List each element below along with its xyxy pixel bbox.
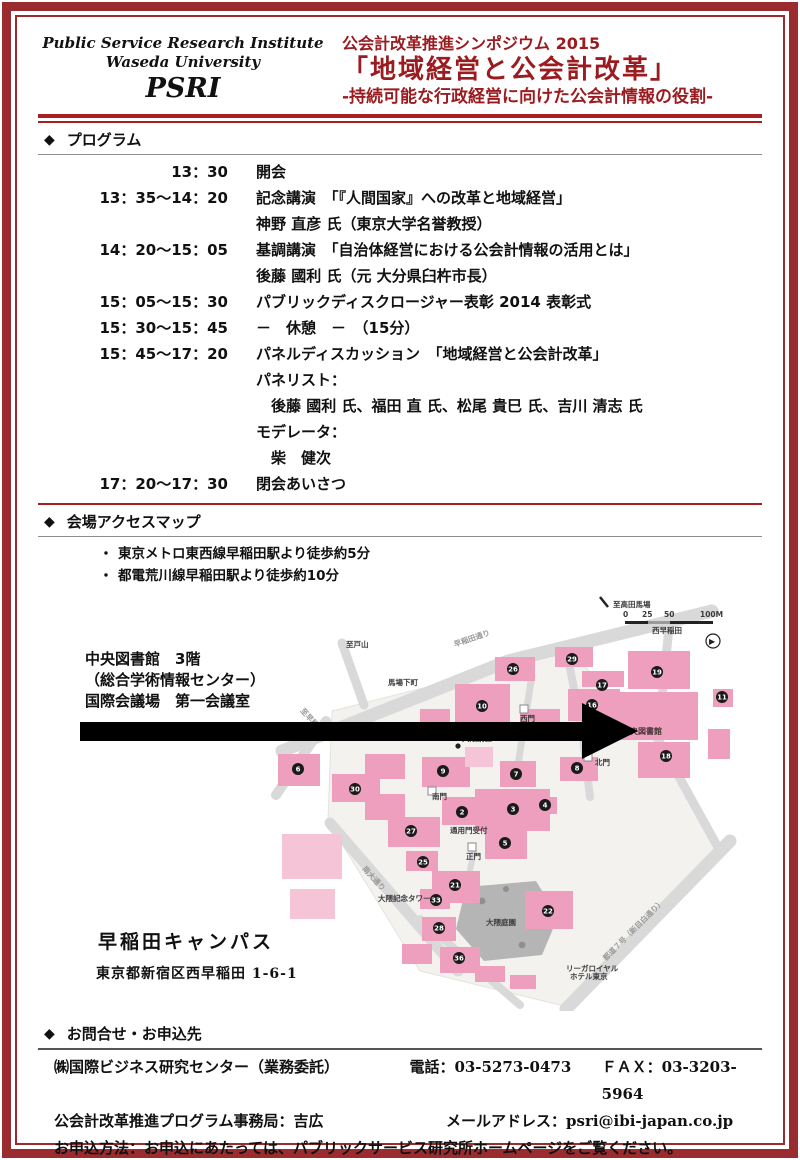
program-text: 開会 — [256, 159, 286, 185]
program-time: 15：30～15：45 — [38, 315, 228, 341]
building-number: 21 — [450, 882, 460, 890]
program-rows: 13：30 開会 13：35～14：20 記念講演 「『人間国家』への改革と地域… — [38, 159, 762, 497]
campus-map: 0 25 50 100M ▶ 早稲田通り 至戸山 至早稲田駅 至高田馬場 — [38, 589, 762, 1011]
contact-office: 公会計改革推進プログラム事務局：吉広 — [54, 1108, 446, 1135]
venue-label: 中央図書館 3階 （総合学術情報センター） 国際会議場 第一会議室 — [85, 649, 265, 712]
program-row: パネリスト： — [38, 367, 762, 393]
access-bullet: ・ 東京メトロ東西線早稲田駅より徒歩約5分 — [94, 543, 762, 565]
program-time — [38, 211, 228, 237]
building-number: 5 — [503, 840, 508, 848]
access-bullets: ・ 東京メトロ東西線早稲田駅より徒歩約5分 ・ 都電荒川線早稲田駅より徒歩約10… — [94, 543, 762, 587]
contact-line-office: 公会計改革推進プログラム事務局：吉広 メールアドレス： psri@ibi-jap… — [54, 1108, 762, 1135]
program-time: 14：20～15：05 — [38, 237, 228, 263]
building-number: 28 — [434, 925, 444, 933]
svg-text:0: 0 — [623, 610, 628, 619]
contact-section-heading: ◆ お問合せ・お申込先 — [38, 1017, 762, 1050]
contact-how: お申込方法：お申込にあたっては、パブリックサービス研究所ホームページをご覧くださ… — [54, 1135, 682, 1160]
building-number: 25 — [418, 859, 428, 867]
bullet-icon: ・ — [94, 543, 118, 565]
arrow-pointer — [80, 722, 582, 741]
program-text: 神野 直彦 氏（東京大学名誉教授） — [256, 211, 491, 237]
institute-block: Public Service Research Institute Waseda… — [38, 34, 328, 108]
building-number: 6 — [296, 766, 301, 774]
building-number: 3 — [511, 806, 516, 814]
svg-text:馬場下町: 馬場下町 — [388, 677, 418, 687]
building-number: 19 — [652, 669, 662, 677]
access-bullet-text: 東京メトロ東西線早稲田駅より徒歩約5分 — [118, 543, 370, 565]
program-time — [38, 367, 228, 393]
program-text: 後藤 國利 氏（元 大分県臼杵市長） — [256, 263, 497, 289]
svg-text:25: 25 — [642, 610, 652, 619]
access-heading-label: 会場アクセスマップ — [67, 511, 201, 532]
building-number: 4 — [543, 802, 548, 810]
tree-icon — [519, 942, 526, 949]
header-divider — [38, 114, 762, 123]
contact-company: ㈱国際ビジネス研究センター（業務委託） — [54, 1054, 409, 1108]
building-number: 26 — [508, 666, 518, 674]
building-number: 7 — [514, 771, 519, 779]
building-number: 33 — [431, 897, 441, 905]
contact-line-how: お申込方法：お申込にあたっては、パブリックサービス研究所ホームページをご覧くださ… — [54, 1135, 762, 1160]
svg-text:正門: 正門 — [466, 852, 481, 861]
institute-abbr: PSRI — [38, 73, 328, 105]
building-number: 9 — [441, 768, 446, 776]
access-bullet-text: 都電荒川線早稲田駅より徒歩約10分 — [118, 565, 339, 587]
building-number: 22 — [543, 908, 553, 916]
program-text: 基調講演 「自治体経営における公会計情報の活用とは」 — [256, 237, 639, 263]
university-name: Waseda University — [38, 53, 328, 72]
program-row: 神野 直彦 氏（東京大学名誉教授） — [38, 211, 762, 237]
tree-icon — [503, 886, 509, 892]
program-text: パブリックディスクロージャー表彰 2014 表彰式 — [256, 289, 591, 315]
program-row: 15：05～15：30 パブリックディスクロージャー表彰 2014 表彰式 — [38, 289, 762, 315]
building-number: 29 — [567, 656, 577, 664]
program-time: 13：30 — [38, 159, 228, 185]
program-text: 閉会あいさつ — [256, 471, 346, 497]
building-number: 17 — [597, 682, 607, 690]
event-title: 「地域経営と公会計改革」 — [342, 54, 713, 86]
svg-text:50: 50 — [664, 610, 674, 619]
program-text: 柴 健次 — [256, 445, 331, 471]
program-row: モデレータ： — [38, 419, 762, 445]
svg-text:南門: 南門 — [432, 791, 447, 801]
flyer-content: Public Service Research Institute Waseda… — [38, 20, 762, 1140]
building-number: 2 — [460, 809, 465, 817]
contact-section: ◆ お問合せ・お申込先 ㈱国際ビジネス研究センター（業務委託） 電話：03-52… — [38, 1017, 762, 1160]
program-time: 13：35～14：20 — [38, 185, 228, 211]
program-text: 後藤 國利 氏、福田 直 氏、松尾 貴巳 氏、吉川 清志 氏 — [256, 393, 643, 419]
svg-text:大隈庭園: 大隈庭園 — [486, 917, 516, 927]
program-time: 17：20～17：30 — [38, 471, 228, 497]
compass-icon: ▶ — [706, 634, 720, 648]
contact-line-company: ㈱国際ビジネス研究センター（業務委託） 電話：03-5273-0473 ＦＡＸ：… — [54, 1054, 762, 1108]
institute-name: Public Service Research Institute — [38, 34, 328, 53]
access-bullet: ・ 都電荒川線早稲田駅より徒歩約10分 — [94, 565, 762, 587]
pen-icon — [600, 597, 608, 607]
program-row: 後藤 國利 氏、福田 直 氏、松尾 貴巳 氏、吉川 清志 氏 — [38, 393, 762, 419]
program-row: 柴 健次 — [38, 445, 762, 471]
svg-text:▶: ▶ — [709, 637, 716, 646]
header: Public Service Research Institute Waseda… — [38, 34, 762, 108]
program-row: 15：30～15：45 － 休憩 － （15分） — [38, 315, 762, 341]
map-scale-bar: 0 25 50 100M — [623, 610, 723, 624]
building-number: 18 — [661, 753, 671, 761]
program-row: 13：30 開会 — [38, 159, 762, 185]
contact-fax: ＦＡＸ：03-3203-5964 — [602, 1054, 762, 1108]
program-text: パネルディスカッション 「地域経営と公会計改革」 — [256, 341, 607, 367]
access-section-heading: ◆ 会場アクセスマップ — [38, 505, 762, 537]
diamond-icon: ◆ — [44, 514, 55, 530]
program-time — [38, 445, 228, 471]
campus-address: 東京都新宿区西早稲田 1-6-1 — [96, 963, 298, 983]
program-row: 後藤 國利 氏（元 大分県臼杵市長） — [38, 263, 762, 289]
svg-text:西早稲田: 西早稲田 — [652, 625, 682, 635]
contact-heading-label: お問合せ・お申込先 — [67, 1023, 202, 1044]
program-row: 14：20～15：05 基調講演 「自治体経営における公会計情報の活用とは」 — [38, 237, 762, 263]
program-text: － 休憩 － （15分） — [256, 315, 419, 341]
building-number: 27 — [406, 828, 416, 836]
svg-text:100M: 100M — [700, 610, 723, 619]
flyer-page: Public Service Research Institute Waseda… — [0, 0, 800, 1160]
program-section-heading: ◆ プログラム — [38, 123, 762, 155]
bullet-icon: ・ — [94, 565, 118, 587]
program-text: モデレータ： — [256, 419, 346, 445]
program-heading-label: プログラム — [67, 129, 142, 150]
program-text: パネリスト： — [256, 367, 346, 393]
contact-email-label: メールアドレス： — [446, 1108, 566, 1135]
building-number: 30 — [350, 786, 360, 794]
svg-text:通用門受付: 通用門受付 — [450, 825, 488, 835]
svg-text:早稲田通り: 早稲田通り — [452, 627, 491, 649]
svg-text:ホテル東京: ホテル東京 — [570, 971, 608, 981]
arrow-pointer-head — [582, 703, 638, 759]
program-row: 15：45～17：20 パネルディスカッション 「地域経営と公会計改革」 — [38, 341, 762, 367]
diamond-icon: ◆ — [44, 1026, 55, 1042]
contact-email: psri@ibi-japan.co.jp — [566, 1108, 733, 1135]
diamond-icon: ◆ — [44, 132, 55, 148]
event-subtitle: -持続可能な行政経営に向けた公会計情報の役割- — [342, 86, 713, 108]
program-time: 15：45～17：20 — [38, 341, 228, 367]
campus-name: 早稲田キャンパス — [98, 927, 274, 954]
program-text: 記念講演 「『人間国家』への改革と地域経営」 — [256, 185, 571, 211]
program-row: 17：20～17：30 閉会あいさつ — [38, 471, 762, 497]
building-number: 11 — [717, 694, 727, 702]
campus-map-graphic: 0 25 50 100M ▶ 早稲田通り 至戸山 至早稲田駅 至高田馬場 — [270, 589, 740, 1011]
building-number: 8 — [575, 765, 580, 773]
program-time: 15：05～15：30 — [38, 289, 228, 315]
contact-phone: 電話：03-5273-0473 — [409, 1054, 601, 1108]
building-number: 36 — [454, 955, 464, 963]
svg-text:至戸山: 至戸山 — [346, 639, 369, 649]
program-time — [38, 419, 228, 445]
program-row: 13：35～14：20 記念講演 「『人間国家』への改革と地域経営」 — [38, 185, 762, 211]
event-series: 公会計改革推進シンポジウム 2015 — [342, 34, 713, 54]
event-title-block: 公会計改革推進シンポジウム 2015 「地域経営と公会計改革」 -持続可能な行政… — [342, 34, 713, 108]
building-number: 10 — [477, 703, 487, 711]
program-time — [38, 393, 228, 419]
svg-text:至高田馬場: 至高田馬場 — [613, 599, 651, 609]
program-time — [38, 263, 228, 289]
svg-text:大隈記念タワー: 大隈記念タワー — [378, 893, 431, 903]
